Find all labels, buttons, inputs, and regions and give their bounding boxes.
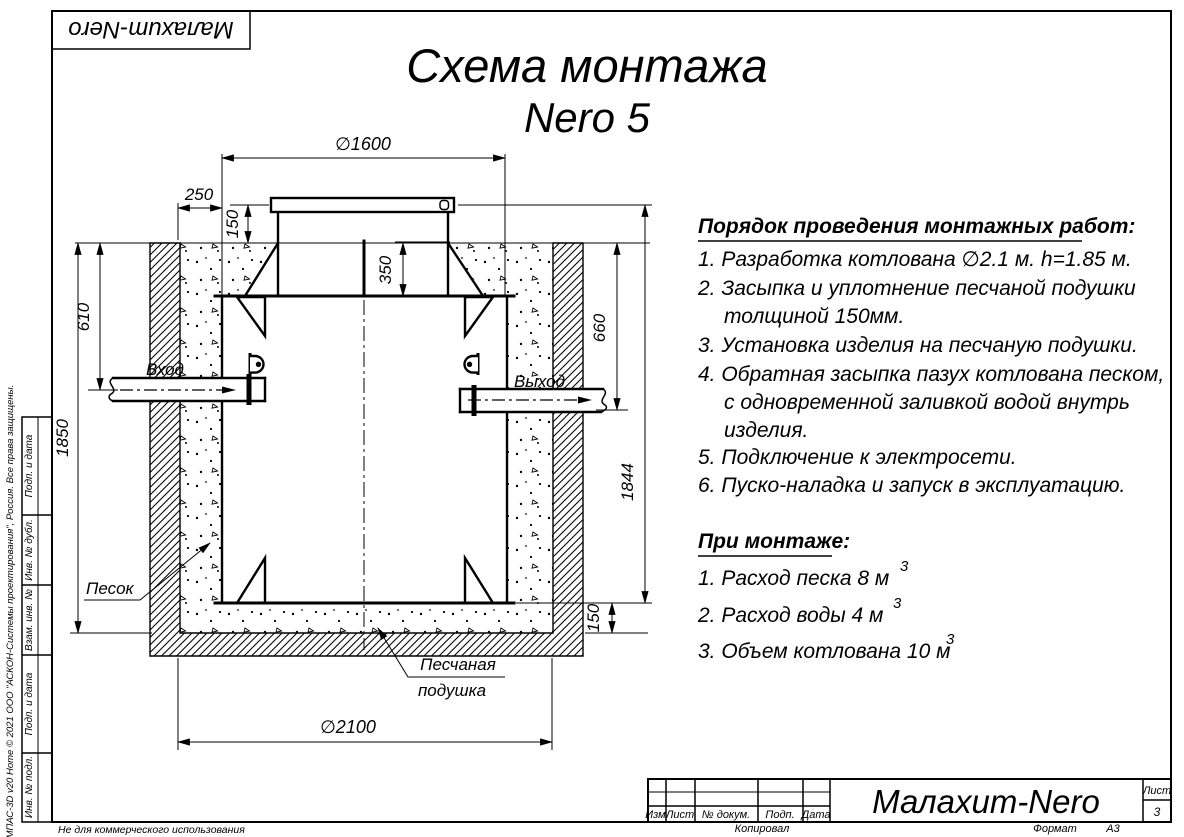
tank-lid	[271, 198, 454, 212]
copied-by-label: Копировал	[735, 823, 790, 835]
installation-steps: Порядок проведения монтажных работ: 1. Р…	[697, 215, 1164, 497]
dim-label: 1844	[618, 463, 637, 501]
cushion-label-line1: Песчаная	[420, 655, 496, 674]
dim-150-cushion: 150	[584, 603, 648, 633]
col-podp: Подп.	[765, 809, 794, 821]
logo-text: Малахит-Nero	[68, 16, 234, 43]
outlet-label: Выход	[514, 372, 565, 391]
dim-250: 250	[178, 185, 222, 240]
dim-label: ∅1600	[335, 134, 391, 154]
dim-1850: 1850	[53, 243, 152, 633]
stamp-label: Подп. и дата	[24, 434, 35, 497]
non-commercial-notice: Не для коммерческого использования	[58, 824, 245, 836]
format-label: Формат	[1033, 823, 1077, 835]
stamp-label: Инв. № подл.	[24, 756, 35, 818]
step-line: 6. Пуско-наладка и запуск в эксплуатацию…	[698, 474, 1125, 497]
dim-label: 610	[74, 302, 93, 331]
page-title: Схема монтажа	[406, 39, 767, 92]
inlet-pipe	[109, 374, 265, 405]
logo-box: Малахит-Nero	[52, 11, 250, 49]
drawing-sheet: Малахит-Nero Схема монтажа Nero 5	[0, 0, 1184, 837]
montage-item: 3. Объем котлована 10 м	[698, 640, 951, 663]
col-ndokum: № докум.	[702, 809, 750, 821]
dim-660: 660	[590, 243, 628, 410]
gusset	[237, 297, 265, 336]
step-line: 1. Разработка котлована ∅2.1 м. h=1.85 м…	[698, 248, 1132, 271]
dim-label: ∅2100	[320, 717, 376, 737]
dim-label: 660	[590, 313, 609, 342]
sheet-label: Лист	[1142, 785, 1171, 797]
dim-610: 610	[74, 243, 118, 390]
montage-heading: При монтаже:	[698, 530, 850, 553]
dim-label: 150	[223, 209, 242, 238]
dim-label: 350	[376, 255, 395, 284]
page-subtitle: Nero 5	[524, 94, 651, 141]
step-line: 4. Обратная засыпка пазух котлована песк…	[698, 363, 1164, 386]
step-line: с одновременной заливкой водой внутрь	[724, 391, 1130, 414]
montage-item-sup: 3	[900, 558, 909, 575]
montage-item-sup: 3	[946, 631, 955, 648]
product-name: Малахит-Nero	[872, 783, 1100, 820]
drawing-canvas: Малахит-Nero Схема монтажа Nero 5	[0, 0, 1184, 837]
title-block: Изм. Лист № докум. Подп. Дата Малахит-Ne…	[645, 779, 1171, 822]
stamp-label: Подп. и дата	[24, 672, 35, 735]
cushion-label-line2: подушка	[418, 681, 486, 700]
step-line: изделия.	[724, 419, 808, 442]
dim-label: 1850	[53, 419, 72, 457]
col-data: Дата	[799, 809, 830, 821]
sand-fill	[180, 243, 553, 633]
outlet-fitting	[465, 353, 479, 375]
montage-item: 1. Расход песка 8 м	[698, 567, 889, 590]
format-value: A3	[1105, 823, 1120, 835]
montage-item-sup: 3	[893, 595, 902, 612]
dim-label: 150	[584, 603, 603, 632]
col-list: Лист	[665, 809, 694, 821]
sheet-number: 3	[1154, 805, 1161, 819]
montage-notes: При монтаже: 1. Расход песка 8 м 3 2. Ра…	[697, 530, 955, 663]
margin-stamps: Подп. и дата Инв. № дубл. Взам. инв. № П…	[22, 417, 52, 822]
dim-350: 350	[376, 242, 450, 296]
gusset	[465, 558, 493, 603]
gusset	[465, 297, 493, 336]
dim-1600: ∅1600	[222, 134, 505, 158]
stamp-label: Инв. № дубл.	[23, 519, 35, 581]
dim-label: 250	[184, 185, 214, 204]
stamp-label: Взам. инв. №	[24, 589, 35, 651]
installation-heading: Порядок проведения монтажных работ:	[698, 215, 1135, 238]
gusset	[237, 558, 265, 603]
step-line: 3. Установка изделия на песчаную подушки…	[698, 334, 1138, 357]
montage-item: 2. Расход воды 4 м	[697, 604, 883, 627]
software-copyright: КОМПАС-3D v20 Home © 2021 ООО "АСКОН-Сис…	[5, 385, 16, 837]
sand-label: Песок	[86, 579, 135, 598]
step-line: 5. Подключение к электросети.	[698, 446, 1017, 469]
dim-2100: ∅2100	[178, 658, 552, 750]
inlet-label: Вход	[146, 360, 184, 379]
step-line: толщиной 150мм.	[724, 305, 904, 328]
lid-latch	[440, 201, 449, 210]
inlet-fitting	[250, 353, 264, 375]
step-line: 2. Засыпка и уплотнение песчаной подушки	[697, 277, 1136, 300]
dim-150-neck: 150	[223, 205, 269, 243]
